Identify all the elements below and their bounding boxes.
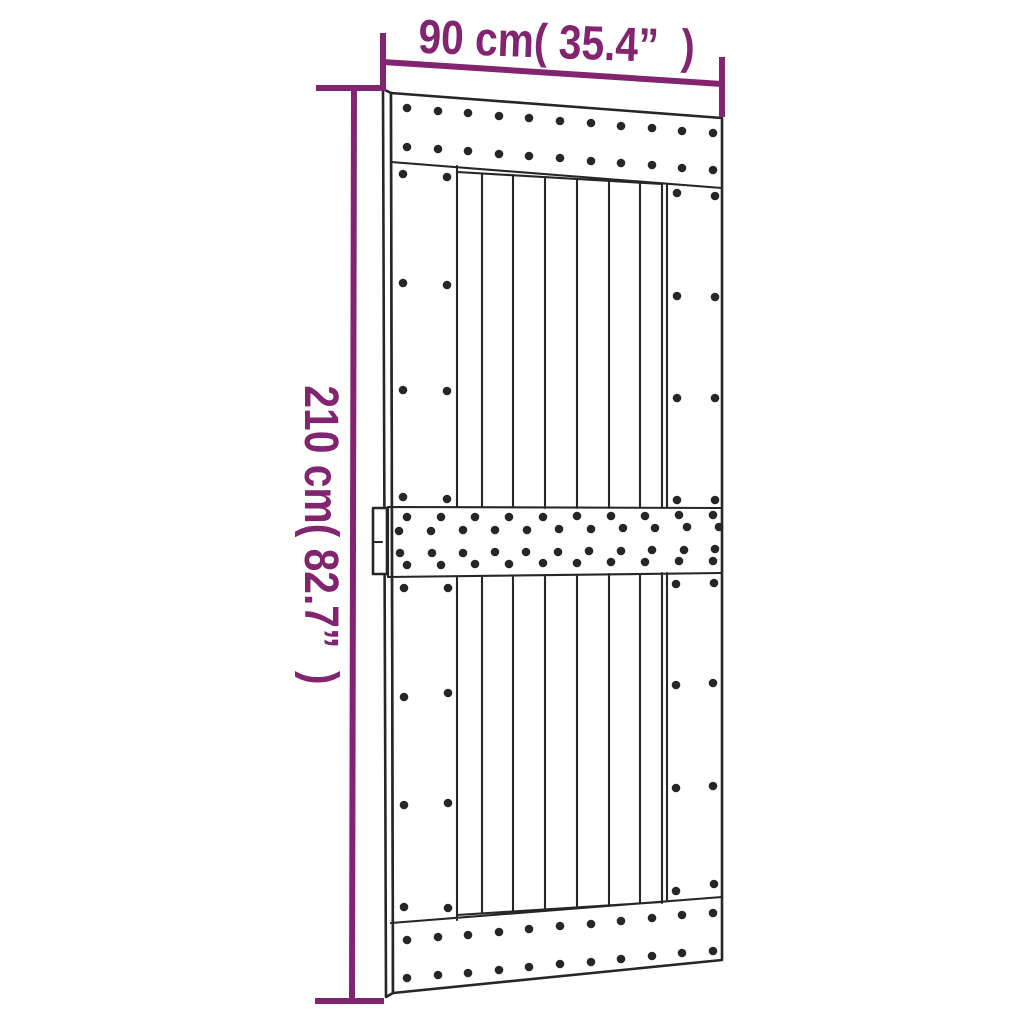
- height-label: 210 cm( 82.7” ): [294, 385, 347, 684]
- door-dimension-diagram: 90 cm( 35.4” ) 210 cm( 82.7” ): [0, 0, 1024, 1024]
- width-label: 90 cm( 35.4” ): [417, 11, 695, 74]
- diagram-canvas: 90 cm( 35.4” ) 210 cm( 82.7” ): [0, 0, 1024, 1024]
- height-dimension: 210 cm( 82.7” ): [294, 88, 384, 1001]
- door-drawing: [373, 89, 723, 997]
- door-face: [391, 93, 722, 993]
